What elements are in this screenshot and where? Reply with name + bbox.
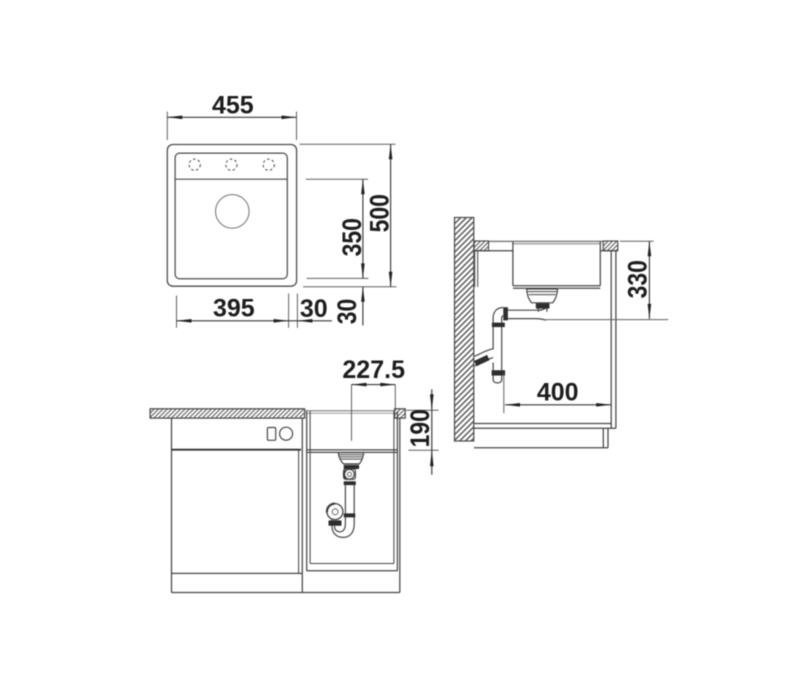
svg-text:395: 395 — [213, 295, 255, 323]
svg-text:227.5: 227.5 — [342, 356, 405, 384]
svg-text:30: 30 — [300, 295, 328, 323]
svg-text:455: 455 — [212, 91, 254, 119]
svg-text:330: 330 — [623, 260, 653, 298]
svg-text:190: 190 — [405, 409, 435, 447]
svg-text:30: 30 — [332, 299, 362, 325]
svg-text:500: 500 — [365, 194, 395, 232]
svg-text:350: 350 — [337, 218, 367, 256]
svg-text:400: 400 — [537, 378, 579, 406]
